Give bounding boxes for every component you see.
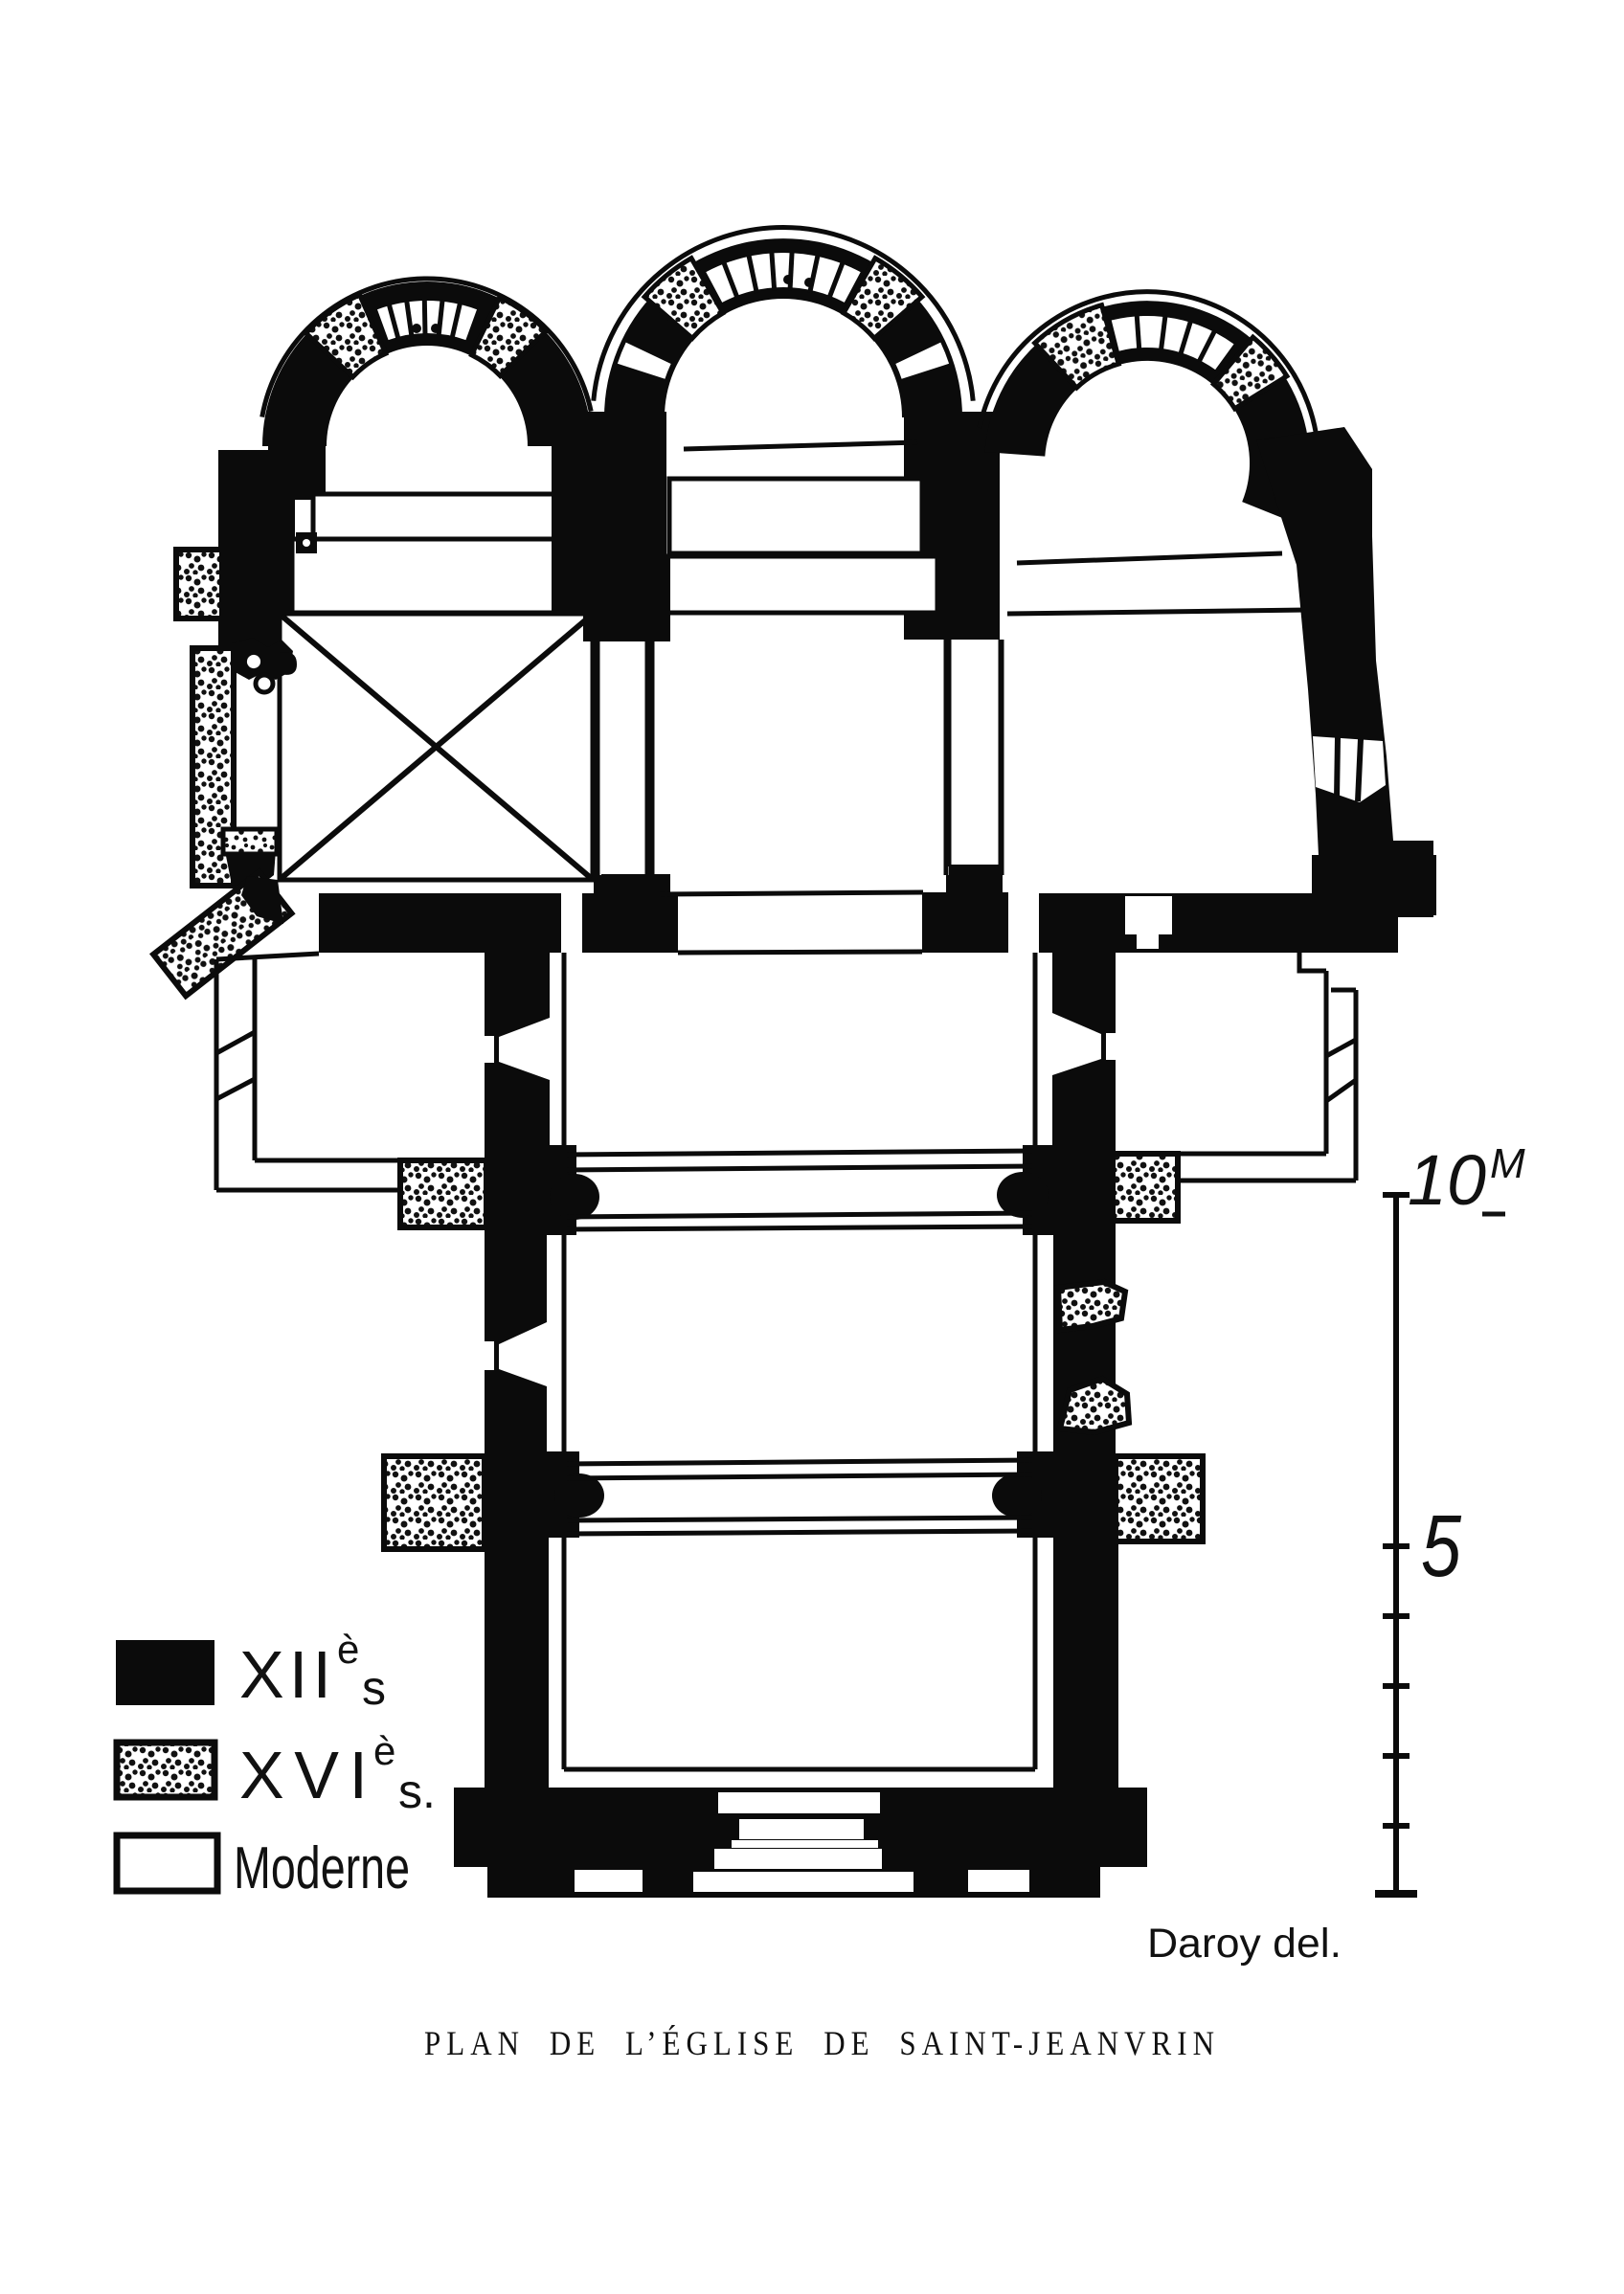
svg-text:Moderne: Moderne	[234, 1835, 410, 1901]
svg-text:M: M	[1490, 1140, 1525, 1187]
svg-text:è: è	[337, 1627, 359, 1672]
svg-text:PLAN DE L’ÉGLISE DE SAINT-JEAN: PLAN DE L’ÉGLISE DE SAINT-JEANVRIN	[424, 2024, 1220, 2062]
svg-text:XVI: XVI	[239, 1738, 368, 1812]
svg-text:s: s	[362, 1661, 386, 1715]
svg-text:è: è	[373, 1728, 395, 1773]
svg-text:Daroy del.: Daroy del.	[1147, 1921, 1342, 1967]
svg-text:s.: s.	[398, 1765, 436, 1818]
svg-text:10: 10	[1408, 1140, 1486, 1220]
svg-text:5: 5	[1421, 1497, 1462, 1595]
